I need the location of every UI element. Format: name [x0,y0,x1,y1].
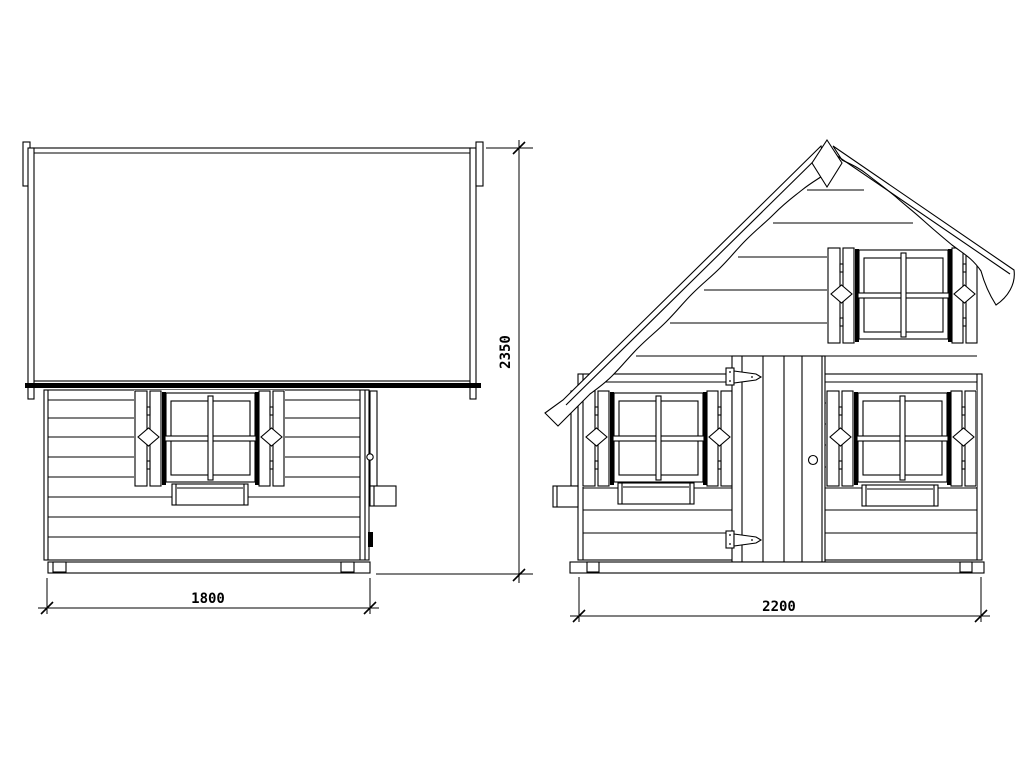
hinge-profile [368,532,373,547]
front-elevation-view [545,140,1014,573]
front-right-flower-box [862,485,938,506]
drawing-canvas: 1800 2350 2200 [0,0,1024,768]
foundation-foot [341,562,354,572]
foundation-foot [960,562,972,572]
dimension-label-front-width: 2200 [762,599,796,615]
latch-knob-profile [367,454,373,460]
shutter-profile [370,391,377,486]
front-face-profile [367,391,396,547]
door-knob [809,456,818,465]
front-left-flower-box [618,483,694,504]
roof-panel [33,148,471,381]
gable-window [827,247,978,344]
bargeboard-right [470,148,476,399]
foundation-foot [53,562,66,572]
foundation-foot [587,562,599,572]
front-window-left [582,390,733,487]
base-skid [48,562,370,573]
dimension-side-width: 1800 [38,578,379,614]
door [726,356,825,562]
side-window [134,390,285,487]
side-window-flower-box [172,484,248,505]
front-window-right [826,390,977,487]
bargeboard-cap-right [476,142,483,186]
dimension-label-height: 2350 [498,335,514,369]
eave-band [25,383,481,388]
dimension-label-side-width: 1800 [191,591,225,607]
bargeboard-left [28,148,34,399]
dimension-front-width: 2200 [570,577,990,622]
side-elevation-view [23,142,483,573]
base-skid [570,562,984,573]
